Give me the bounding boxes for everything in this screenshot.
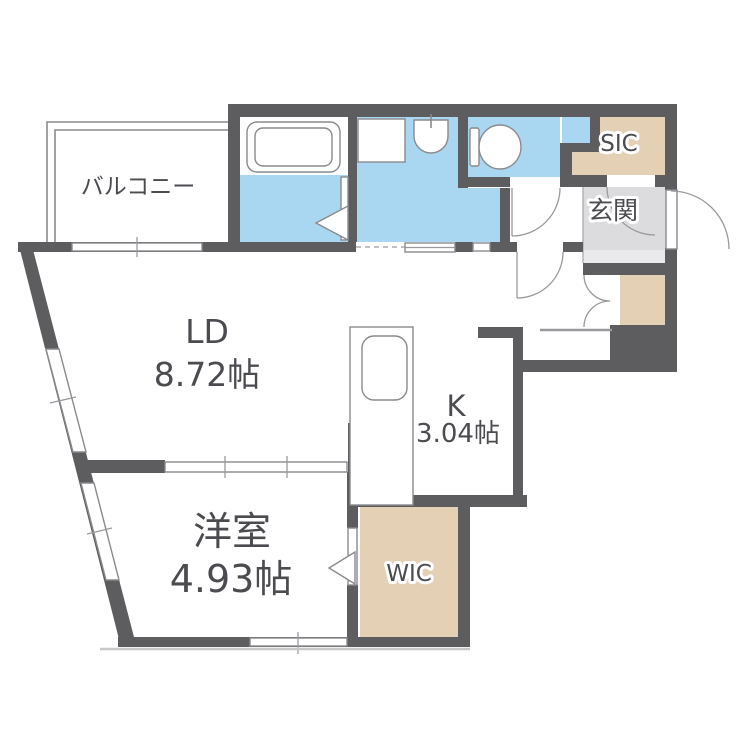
kitchen-sink-icon (362, 336, 407, 400)
wall-toilet-bottom (468, 177, 510, 187)
kitchen-area-label: 3.04帖 (416, 419, 500, 449)
closet-double-door-arcs (584, 275, 610, 327)
wall-under-bath (240, 242, 356, 252)
wall-sic-bottom-right (655, 175, 665, 187)
wall-sic-bottom-left (572, 175, 607, 187)
entrance-step (583, 250, 667, 263)
washer-pan-icon (358, 119, 405, 162)
wall-wic-right (458, 495, 470, 647)
toilet-door-arc (512, 188, 560, 236)
wall-sic-ext-left (560, 143, 572, 187)
bedroom-area-label: 4.93帖 (170, 557, 293, 601)
hall-closet-floor (620, 275, 667, 327)
wall-k-top (478, 327, 523, 338)
wall-hall-seg1 (455, 242, 473, 252)
entrance-label: 玄関 (588, 196, 638, 225)
diagonal-window-upper (46, 349, 86, 452)
wic-label: WIC (386, 561, 432, 587)
toilet-bowl-icon (479, 125, 521, 169)
sic-label: SIC (600, 131, 637, 157)
floor-plan: バルコニー SIC 玄関 LD 8.72帖 K 3.04帖 洋室 4.93帖 W… (0, 0, 750, 750)
ld-area-label: 8.72帖 (154, 355, 260, 394)
ld-bedroom-sliding-door (165, 462, 347, 472)
wall-bedroom-wic-lower (347, 585, 358, 638)
wall-bath-left (228, 104, 240, 252)
wall-mid-right (523, 360, 677, 372)
kitchen-label: K (446, 389, 466, 423)
bathtub-inner (255, 128, 332, 166)
wall-top (228, 104, 677, 117)
wic-folding-door-icon (329, 552, 355, 584)
wall-right-upper (665, 104, 677, 190)
hall-wall-notch (473, 243, 490, 251)
floor-plan-canvas: バルコニー SIC 玄関 LD 8.72帖 K 3.04帖 洋室 4.93帖 W… (0, 0, 750, 750)
wall-hall-seg3 (563, 242, 583, 252)
room-floors (240, 117, 667, 637)
ld-label: LD (185, 312, 229, 351)
bedroom-label: 洋室 (193, 510, 271, 555)
balcony-label: バルコニー (81, 174, 196, 200)
wall-genkan-bottom (583, 263, 667, 275)
wall-ld-bedroom (80, 460, 165, 473)
entrance-door-leaf (666, 190, 677, 249)
entrance-door-arc (671, 191, 729, 249)
toilet-tank-icon (470, 128, 479, 166)
wall-bath-wash-divider (348, 117, 357, 242)
wall-hall-seg2 (490, 242, 517, 252)
wall-k-right (513, 338, 523, 497)
wall-toilet-sic (590, 117, 600, 147)
hall-door-arc (517, 252, 563, 298)
wall-wash-toilet-divider (458, 117, 468, 188)
